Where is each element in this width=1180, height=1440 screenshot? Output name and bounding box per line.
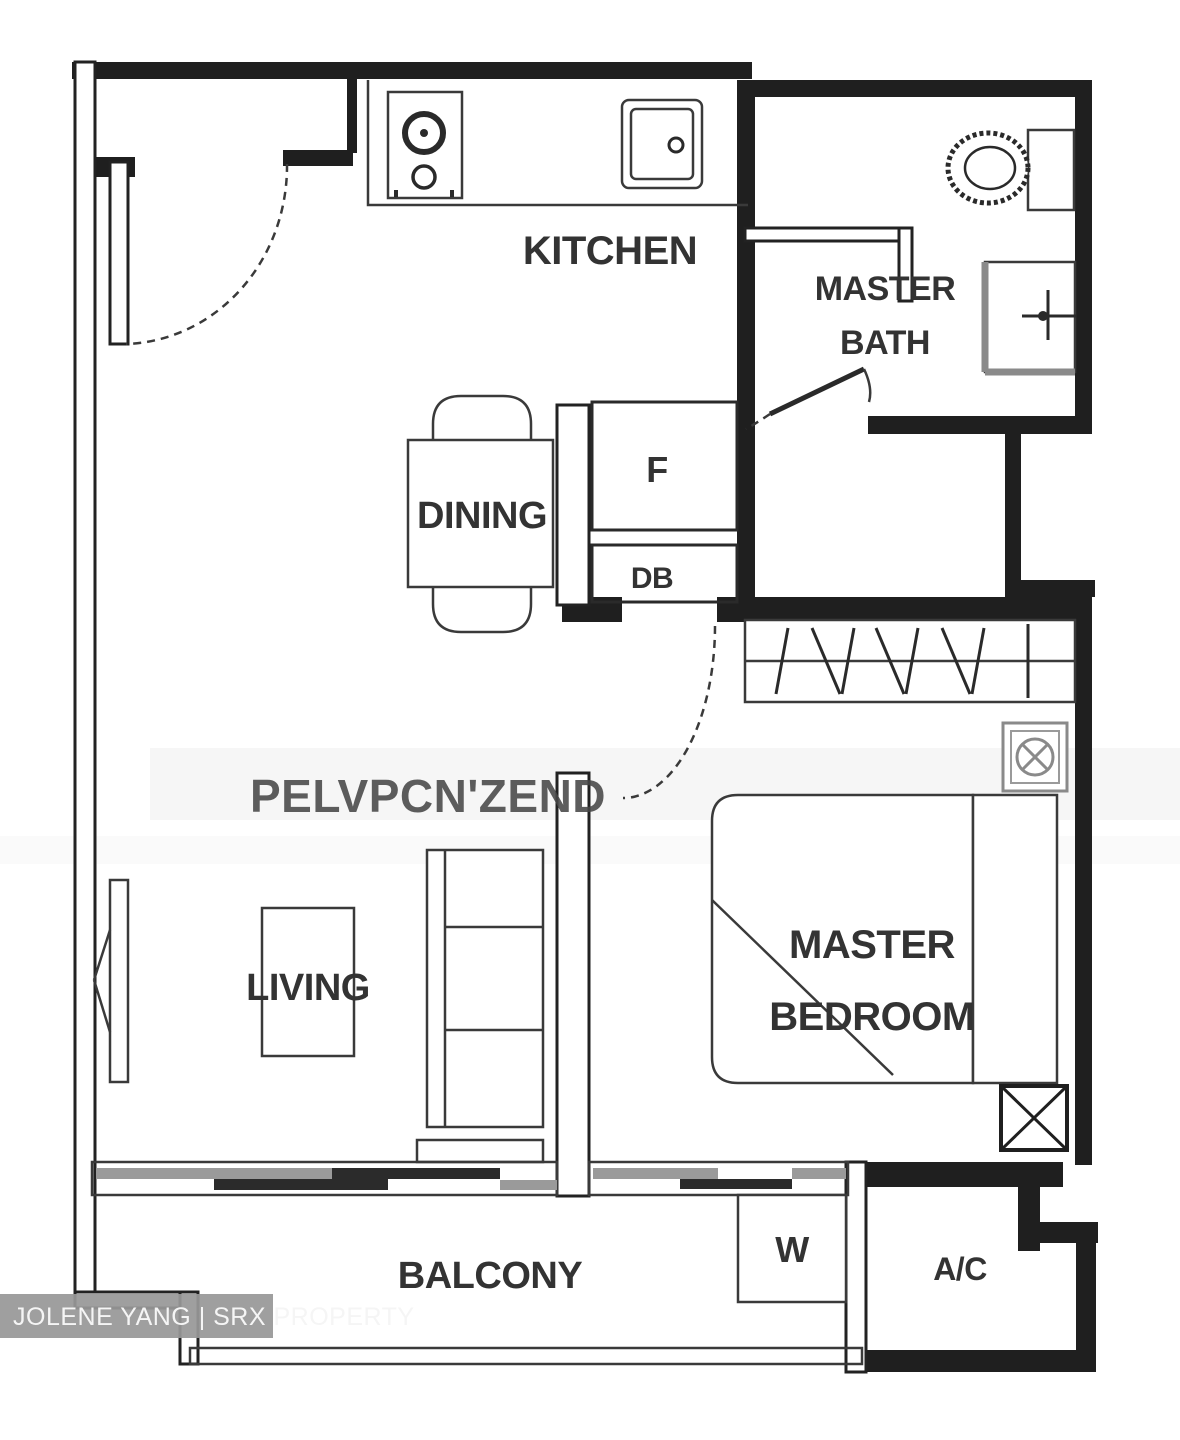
sink-icon xyxy=(622,100,702,188)
label-washer: W xyxy=(775,1229,809,1270)
entry-door-swing-arc xyxy=(126,164,287,344)
label-fridge: F xyxy=(646,449,668,490)
label-master-bedroom-1: MASTER xyxy=(789,923,956,967)
floor-plan-image: KITCHEN MASTER BATH F DB DINING LIVING M… xyxy=(0,0,1180,1440)
label-living: LIVING xyxy=(246,967,370,1009)
shower-icon xyxy=(985,262,1076,372)
label-master-bath-1: MASTER xyxy=(815,270,956,308)
wardrobe xyxy=(745,620,1075,702)
dining-chair xyxy=(433,396,531,441)
floor-plan-drawing: KITCHEN MASTER BATH F DB DINING LIVING M… xyxy=(0,0,1180,1440)
fan-coil-unit-icon xyxy=(1003,723,1067,791)
bedside-cabinet xyxy=(973,795,1057,1083)
label-master-bedroom-2: BEDROOM xyxy=(769,995,974,1039)
stove-icon xyxy=(388,92,462,198)
dining-chair xyxy=(433,587,531,632)
ceiling-unit-box-icon xyxy=(1001,1086,1067,1150)
label-master-bath-2: BATH xyxy=(840,324,930,362)
label-ac: A/C xyxy=(933,1251,987,1287)
kitchen xyxy=(368,80,748,205)
master-bedroom xyxy=(623,620,1075,1150)
watermark-artifact-text: PELVPCN'ZEND xyxy=(250,770,606,822)
balcony-parapet xyxy=(190,1348,862,1364)
entry-door-leaf xyxy=(110,162,128,344)
label-kitchen: KITCHEN xyxy=(523,229,697,273)
label-dining: DINING xyxy=(417,495,547,537)
entry-door xyxy=(110,162,287,344)
sofa xyxy=(417,850,543,1162)
agent-watermark: JOLENE YANG | SRX PROPERTY xyxy=(0,1294,415,1338)
label-balcony: BALCONY xyxy=(398,1255,583,1297)
tv-icon xyxy=(94,880,128,1082)
bath-door xyxy=(746,369,870,429)
label-db: DB xyxy=(631,562,673,595)
watermark-agent-text: JOLENE YANG | SRX PROPERTY xyxy=(13,1303,415,1331)
sliding-doors xyxy=(92,1162,848,1195)
toilet-icon xyxy=(948,130,1074,210)
